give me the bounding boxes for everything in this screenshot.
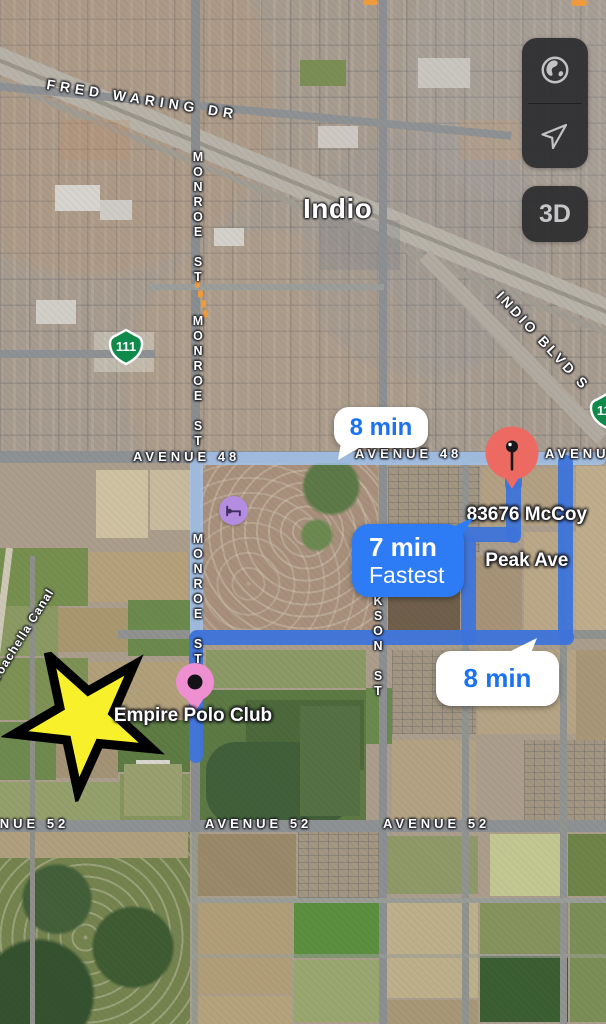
location-arrow-icon	[540, 121, 570, 151]
street-label-avenue-48-right: AVENUE 48	[545, 446, 606, 461]
eta-bubble-top[interactable]: 8 min	[334, 407, 428, 448]
street-label-avenue-48-mid: AVENUE 48	[355, 446, 462, 461]
street-label-avenue-52-left: AVENUE 52	[0, 816, 69, 831]
route-111-shield-right: 111	[588, 392, 606, 430]
map-controls-panel	[522, 38, 588, 168]
threed-label: 3D	[539, 200, 571, 229]
traffic-dash	[571, 0, 587, 6]
maps-app-window: FRED WARING DR MONROE ST MONROE ST MONRO…	[0, 0, 606, 1024]
eta-text: 8 min	[464, 663, 532, 694]
bed-icon	[224, 501, 243, 520]
eta-fastest-tag: Fastest	[369, 562, 444, 589]
eta-bubble-fastest[interactable]: 7 min Fastest	[352, 524, 464, 597]
globe-icon	[539, 54, 571, 86]
lodging-poi[interactable]	[219, 496, 248, 525]
current-location-button[interactable]	[522, 104, 588, 168]
svg-text:111: 111	[116, 339, 136, 354]
street-label-monroe-st-top: MONROE ST	[190, 150, 205, 285]
traffic-dot	[198, 290, 203, 298]
traffic-dash	[363, 0, 378, 5]
eta-fastest-time: 7 min	[369, 532, 437, 562]
traffic-dot	[201, 300, 206, 308]
svg-text:111: 111	[597, 403, 606, 418]
street-label-avenue-52-mid: AVENUE 52	[205, 816, 312, 831]
street-label-monroe-st-bottom: MONROE ST	[190, 532, 205, 667]
street-label-monroe-st-mid: MONROE ST	[190, 314, 205, 449]
eta-bubble-bottom[interactable]: 8 min	[436, 651, 559, 706]
city-label-indio: Indio	[303, 193, 372, 225]
threed-button[interactable]: 3D	[522, 186, 588, 242]
satellite-map[interactable]: FRED WARING DR MONROE ST MONROE ST MONRO…	[0, 0, 606, 1024]
origin-label: Empire Polo Club	[93, 704, 293, 727]
eta-text: 8 min	[350, 414, 413, 442]
map-mode-button[interactable]	[522, 38, 588, 103]
route-111-shield-left: 111	[107, 328, 145, 366]
street-label-avenue-48-left: AVENUE 48	[133, 449, 240, 464]
street-label-avenue-52-right: AVENUE 52	[383, 816, 490, 831]
